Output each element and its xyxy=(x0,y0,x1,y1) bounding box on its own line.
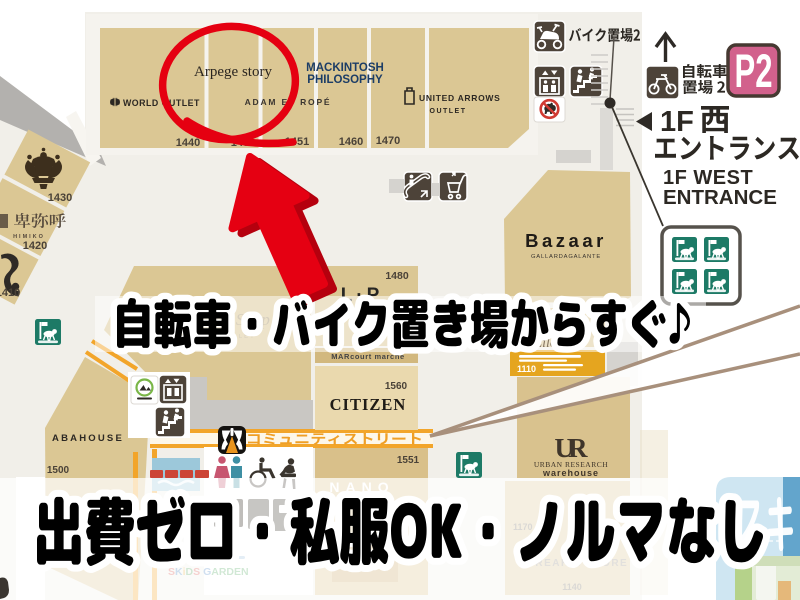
svg-text:GALLARDAGALANTE: GALLARDAGALANTE xyxy=(531,254,601,260)
svg-text:1440: 1440 xyxy=(176,137,200,149)
svg-text:1460: 1460 xyxy=(339,136,363,148)
svg-text:1551: 1551 xyxy=(397,455,420,466)
svg-text:1500: 1500 xyxy=(47,465,70,476)
svg-text:CITIZEN: CITIZEN xyxy=(330,395,407,414)
svg-text:warehouse: warehouse xyxy=(542,468,599,478)
svg-text:1470: 1470 xyxy=(376,135,400,147)
svg-text:1430: 1430 xyxy=(48,192,72,204)
svg-text:1560: 1560 xyxy=(385,381,408,392)
svg-text:1480: 1480 xyxy=(385,270,409,282)
svg-text:Bazaar: Bazaar xyxy=(525,230,607,251)
svg-text:1420: 1420 xyxy=(23,240,47,252)
svg-text:ABAHOUSE: ABAHOUSE xyxy=(52,433,124,444)
svg-text:UNITED ARROWS: UNITED ARROWS xyxy=(419,93,501,103)
svg-text:Arpege story: Arpege story xyxy=(194,64,272,80)
svg-text:UR: UR xyxy=(555,433,589,463)
svg-text:1F: 1F xyxy=(660,106,694,138)
svg-text:PHILOSOPHY: PHILOSOPHY xyxy=(307,74,383,86)
svg-text:1410: 1410 xyxy=(0,287,20,299)
svg-text:P2: P2 xyxy=(735,44,773,97)
svg-text:1110: 1110 xyxy=(517,364,536,374)
svg-text:OUTLET: OUTLET xyxy=(430,108,467,115)
svg-text:MACKINTOSH: MACKINTOSH xyxy=(306,62,384,74)
svg-text:ENTRANCE: ENTRANCE xyxy=(663,186,777,209)
